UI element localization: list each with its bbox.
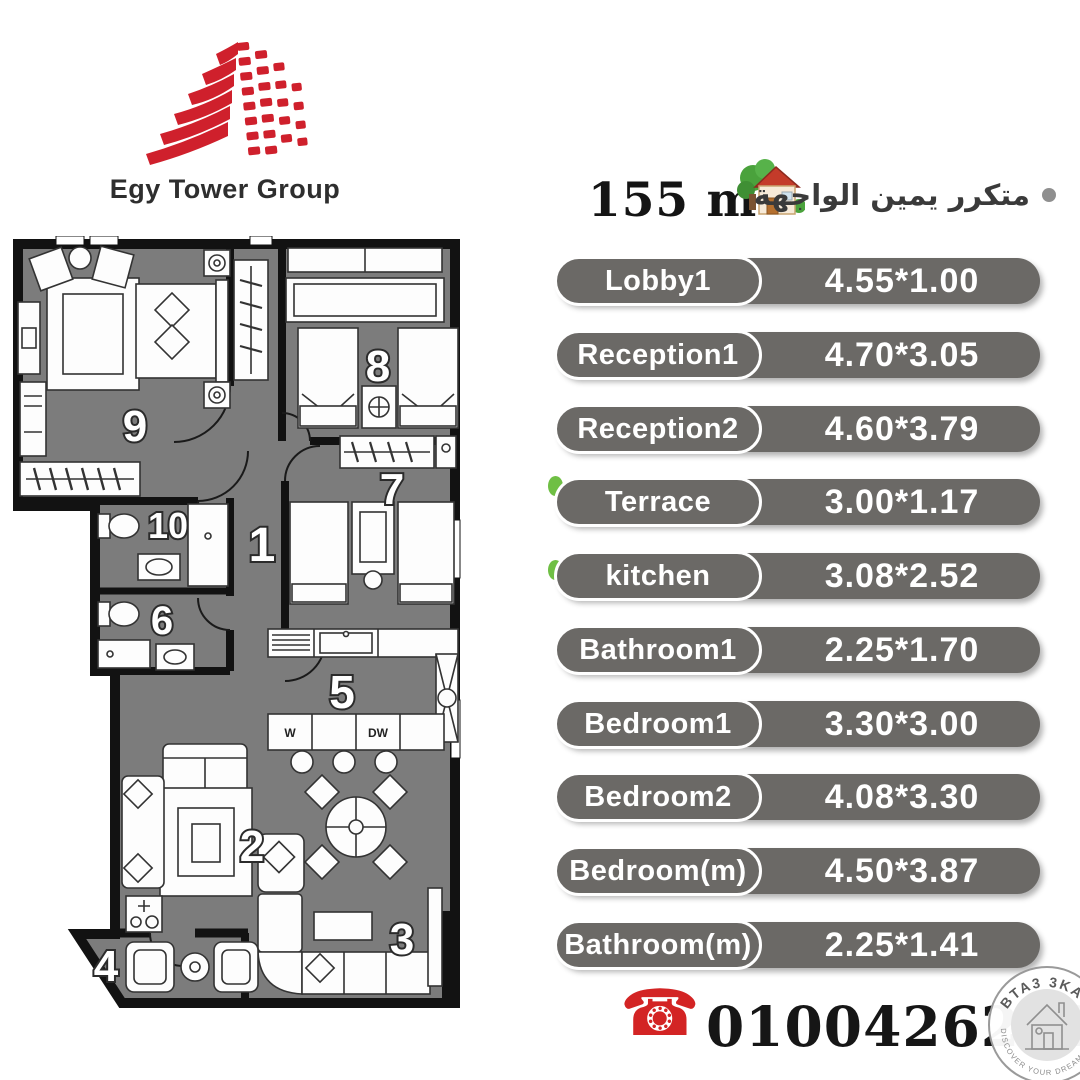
flyer-page: Egy Tower Group 155 m2 متكرر يمين الواجه…	[0, 0, 1080, 1080]
table-row: Bathroom1 2.25*1.70	[556, 627, 1040, 673]
table-row: Bedroom2 4.08*3.30	[556, 774, 1040, 820]
room-name-pill: kitchen	[554, 551, 762, 601]
room-number-8: 8	[366, 342, 390, 391]
tub	[98, 640, 150, 668]
tv-unit	[428, 888, 442, 986]
room-name: Bedroom1	[584, 708, 731, 741]
table-row: Bathroom(m) 2.25*1.41	[556, 922, 1040, 968]
sink	[138, 554, 180, 580]
table-row: Reception1 4.70*3.05	[556, 332, 1040, 378]
chair	[364, 571, 382, 589]
sink	[156, 644, 194, 670]
table-row: Terrace 3.00*1.17	[556, 479, 1040, 525]
room-dimensions: 3.00*1.17	[764, 479, 1040, 525]
room-number-4: 4	[94, 942, 119, 991]
rug	[160, 788, 252, 896]
bullet-icon	[1042, 188, 1056, 202]
room-name: Bathroom(m)	[564, 929, 752, 962]
arabic-note-text: متكرر يمين الواجهة	[754, 178, 1030, 212]
hall-closet	[234, 260, 268, 380]
room-dimensions: 3.08*2.52	[764, 553, 1040, 599]
wall-notch	[442, 911, 455, 1003]
room-number-1: 1	[249, 519, 276, 572]
room-name: Bedroom(m)	[569, 855, 746, 888]
headboard	[216, 280, 228, 382]
nightstand	[204, 382, 230, 408]
logo-block: Egy Tower Group	[100, 22, 350, 205]
table-row: Bedroom1 3.30*3.00	[556, 701, 1040, 747]
room-number-7: 7	[380, 465, 404, 514]
room-name-pill: Terrace	[554, 477, 762, 527]
room-dimensions: 2.25*1.41	[764, 922, 1040, 968]
room-number-6: 6	[151, 599, 173, 643]
room-name-pill: Lobby1	[554, 256, 762, 306]
table-row: Reception2 4.60*3.79	[556, 406, 1040, 452]
room-number-3: 3	[390, 915, 414, 964]
room-name-pill: Reception2	[554, 404, 762, 454]
room-name-pill: Bathroom(m)	[554, 920, 762, 970]
room-name-pill: Bedroom1	[554, 699, 762, 749]
toilet	[109, 602, 139, 626]
phone-icon: ☎	[620, 982, 700, 1046]
room-number-2: 2	[240, 822, 264, 871]
toilet	[109, 514, 139, 538]
area-value: 155 m	[588, 173, 757, 228]
stool	[375, 751, 397, 773]
room-name-pill: Bathroom1	[554, 625, 762, 675]
terrace-table	[181, 953, 209, 981]
room-name: Reception1	[577, 339, 738, 372]
room-name: Reception2	[577, 413, 738, 446]
room-name: Bathroom1	[579, 634, 737, 667]
arabic-note-row: متكرر يمين الواجهة	[754, 178, 1056, 212]
stool	[291, 751, 313, 773]
floor-plan: W DW 9 8 10 6 1 7 5 2 3 4	[10, 236, 465, 1016]
shower	[188, 504, 228, 586]
room-name: Bedroom2	[584, 781, 731, 814]
room-dimensions: 4.55*1.00	[764, 258, 1040, 304]
nightstand	[204, 250, 230, 276]
room-dimensions: 4.70*3.05	[764, 332, 1040, 378]
coffee-table	[314, 912, 372, 940]
room-name-pill: Bedroom2	[554, 772, 762, 822]
table-row: kitchen 3.08*2.52	[556, 553, 1040, 599]
table-row: Bedroom(m) 4.50*3.87	[556, 848, 1040, 894]
room-dimensions: 3.30*3.00	[764, 701, 1040, 747]
logo-title: Egy Tower Group	[100, 174, 350, 205]
washer-label: W	[284, 726, 296, 740]
room-name-pill: Reception1	[554, 330, 762, 380]
room-name: kitchen	[605, 560, 710, 593]
stool	[333, 751, 355, 773]
side-table	[69, 247, 91, 269]
egy-tower-logo-icon	[130, 22, 320, 172]
room-number-9: 9	[123, 402, 147, 451]
sofa	[258, 894, 302, 952]
room-name-pill: Bedroom(m)	[554, 846, 762, 896]
room-number-5: 5	[329, 666, 355, 718]
room-dimensions: 4.60*3.79	[764, 406, 1040, 452]
dishwasher-label: DW	[368, 726, 389, 740]
room-name: Terrace	[605, 486, 711, 519]
room-number-10: 10	[148, 505, 188, 546]
room-dimensions: 2.25*1.70	[764, 627, 1040, 673]
watermark-badge: BTA3 3KAR DISCOVER YOUR DREAM HOME	[987, 965, 1080, 1080]
cabinet	[20, 382, 46, 456]
room-dimensions: 4.50*3.87	[764, 848, 1040, 894]
table-row: Lobby1 4.55*1.00	[556, 258, 1040, 304]
room-name: Lobby1	[605, 265, 711, 298]
room-dimensions: 4.08*3.30	[764, 774, 1040, 820]
